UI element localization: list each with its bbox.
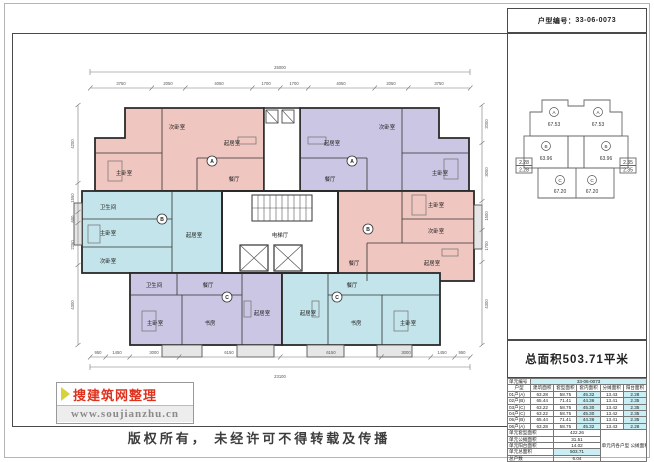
- room-label: 起居室: [254, 309, 271, 317]
- room-label: 书房: [205, 319, 216, 327]
- room-label: 餐厅: [325, 175, 336, 183]
- area-table-wrap: 单元编号33-06-0073户型建筑面积套型面积套内面积分摊面积阳台面积01户(…: [507, 378, 647, 456]
- room-label: 卫生间: [146, 281, 162, 289]
- keyplan-unit-area: 67.20: [554, 189, 567, 195]
- dim-bottom-seg: 3000: [401, 350, 411, 355]
- room-label: 次卧室: [169, 123, 186, 131]
- dim-left-seg: 4300: [70, 300, 75, 310]
- watermark: 搜建筑网整理 www.soujianzhu.cn: [56, 382, 194, 424]
- dim-bottom-seg: 6150: [326, 350, 336, 355]
- dim-top-total: 25000: [274, 65, 286, 70]
- area-table-body: 单元编号33-06-0073户型建筑面积套型面积套内面积分摊面积阳台面积01户(…: [508, 379, 647, 462]
- unit-mark-a1: A: [210, 159, 214, 165]
- keyplan-unit-area: 67.20: [586, 189, 599, 195]
- unit-mark-c2: C: [335, 295, 339, 301]
- room-label: 起居室: [424, 259, 441, 267]
- table-row: 单元套型面积422.26单元内各户型 公摊面积合计: [508, 430, 647, 436]
- room-label: 起居室: [186, 231, 203, 239]
- dim-top-seg: 2050: [163, 81, 173, 86]
- dim-bottom-seg: 1450: [112, 350, 122, 355]
- copyright-text: 版权所有， 未经许可不得转载及传播: [12, 428, 506, 447]
- table-cell: 单元编号: [508, 379, 531, 385]
- keyplan-unit-area: 67.53: [548, 122, 561, 128]
- dim-top-seg: 1700: [261, 81, 271, 86]
- dim-left-seg: 1550: [70, 193, 75, 203]
- core-block: [222, 191, 338, 273]
- floor-plan-drawing: 主卧室 次卧室 起居室 餐厅 起居室 次卧室 主卧室 餐厅 卫生间 主卧室 次卧…: [12, 33, 506, 425]
- room-label: 次卧室: [100, 257, 117, 265]
- room-label: 次卧室: [428, 227, 445, 235]
- unit-code-value: 33-06-0073: [575, 17, 616, 24]
- dim-right-seg: 2000: [484, 119, 489, 129]
- keyplan-left-tag-top: 2.28: [519, 160, 529, 166]
- unit-code-box: 户型编号： 33-06-0073: [507, 8, 647, 33]
- table-cell: 建筑面积: [531, 385, 554, 391]
- watermark-arrow-icon: [61, 387, 70, 401]
- unit-mark-a2: A: [350, 159, 354, 165]
- unit-mark-c1: C: [225, 295, 229, 301]
- table-cell: 套内面积: [577, 385, 600, 391]
- table-cell: 6.04: [554, 455, 600, 461]
- room-label: 次卧室: [379, 123, 396, 131]
- watermark-brand-row: 搜建筑网整理: [57, 383, 193, 405]
- dim-left-seg: 4200: [70, 139, 75, 149]
- unit-fills: [82, 108, 474, 345]
- dim-bottom-seg: 6150: [224, 350, 234, 355]
- dim-top-seg: 4050: [214, 81, 224, 86]
- balcony-right: [474, 205, 482, 249]
- room-label: 主卧室: [116, 169, 133, 177]
- room-label: 餐厅: [347, 281, 358, 289]
- keyplan-drawing: A 67.53 A 67.53 B 63.96 B 63.96 C 67.20 …: [508, 86, 644, 236]
- room-label: 电梯厅: [272, 231, 289, 239]
- room-label: 起居室: [300, 309, 317, 317]
- dim-bottom-seg: 950: [459, 350, 467, 355]
- dim-bottom-seg: 3000: [149, 350, 159, 355]
- table-cell: 阳台面积: [623, 385, 646, 391]
- room-label: 餐厅: [203, 281, 214, 289]
- dim-left-seg: 2250: [70, 240, 75, 250]
- keyplan-right-tag-bottom: 2.35: [623, 168, 633, 174]
- room-label: 起居室: [324, 139, 341, 147]
- balcony-bottom-2: [237, 345, 274, 357]
- dim-left-seg: 600: [70, 215, 75, 223]
- dim-right-seg: 4300: [484, 299, 489, 309]
- total-area-box: 总面积503.71平米: [507, 340, 647, 378]
- room-label: 餐厅: [229, 175, 240, 183]
- table-cell: 分摊面积: [600, 385, 623, 391]
- room-label: 主卧室: [147, 319, 164, 327]
- unit-C-right: [282, 273, 440, 345]
- keyplan-right-tag-top: 2.35: [623, 160, 633, 166]
- keyplan-unit-label: B: [544, 144, 547, 149]
- room-label: 主卧室: [432, 169, 449, 177]
- keyplan-unit-area: 63.96: [540, 156, 553, 162]
- room-label: 餐厅: [349, 259, 360, 267]
- dim-right-seg: 3000: [484, 167, 489, 177]
- unit-mark-b1: B: [160, 217, 164, 223]
- table-cell: 总户数: [508, 455, 554, 461]
- dim-top-seg: 1700: [289, 81, 299, 86]
- keyplan-left-tag-bottom: 2.28: [519, 168, 529, 174]
- dim-bottom-total: 23100: [274, 374, 286, 379]
- room-label: 主卧室: [100, 229, 117, 237]
- room-label: 书房: [351, 319, 362, 327]
- table-cell: 套型面积: [554, 385, 577, 391]
- dim-bottom-seg: 950: [95, 350, 103, 355]
- unit-code-label: 户型编号：: [538, 16, 576, 26]
- room-label: 主卧室: [400, 319, 417, 327]
- keyplan-unit-area: 63.96: [600, 156, 613, 162]
- balcony-bottom-1: [162, 345, 202, 357]
- dim-right-seg: 1500: [484, 211, 489, 221]
- unit-mark-b2: B: [366, 227, 370, 233]
- area-table: 单元编号33-06-0073户型建筑面积套型面积套内面积分摊面积阳台面积01户(…: [507, 378, 647, 462]
- dim-top-seg: 2050: [386, 81, 396, 86]
- keyplan-box: A 67.53 A 67.53 B 63.96 B 63.96 C 67.20 …: [507, 33, 647, 340]
- dim-top-seg: 3750: [434, 81, 444, 86]
- unit-B-right: [338, 191, 474, 281]
- dim-bottom-seg: 1450: [437, 350, 447, 355]
- room-label: 起居室: [224, 139, 241, 147]
- dim-top-seg: 4050: [336, 81, 346, 86]
- keyplan-unit-label: B: [604, 144, 607, 149]
- dim-right-seg: 1700: [484, 241, 489, 251]
- watermark-url: www.soujianzhu.cn: [57, 405, 193, 422]
- total-area-text: 总面积503.71平米: [525, 351, 629, 367]
- table-cell: 单元内各户型 公摊面积合计: [600, 430, 646, 462]
- room-label: 主卧室: [428, 201, 445, 209]
- watermark-brand-text: 搜建筑网整理: [73, 385, 157, 404]
- room-label: 卫生间: [100, 203, 116, 211]
- keyplan-unit-area: 67.53: [592, 122, 605, 128]
- dim-top-seg: 3750: [116, 81, 126, 86]
